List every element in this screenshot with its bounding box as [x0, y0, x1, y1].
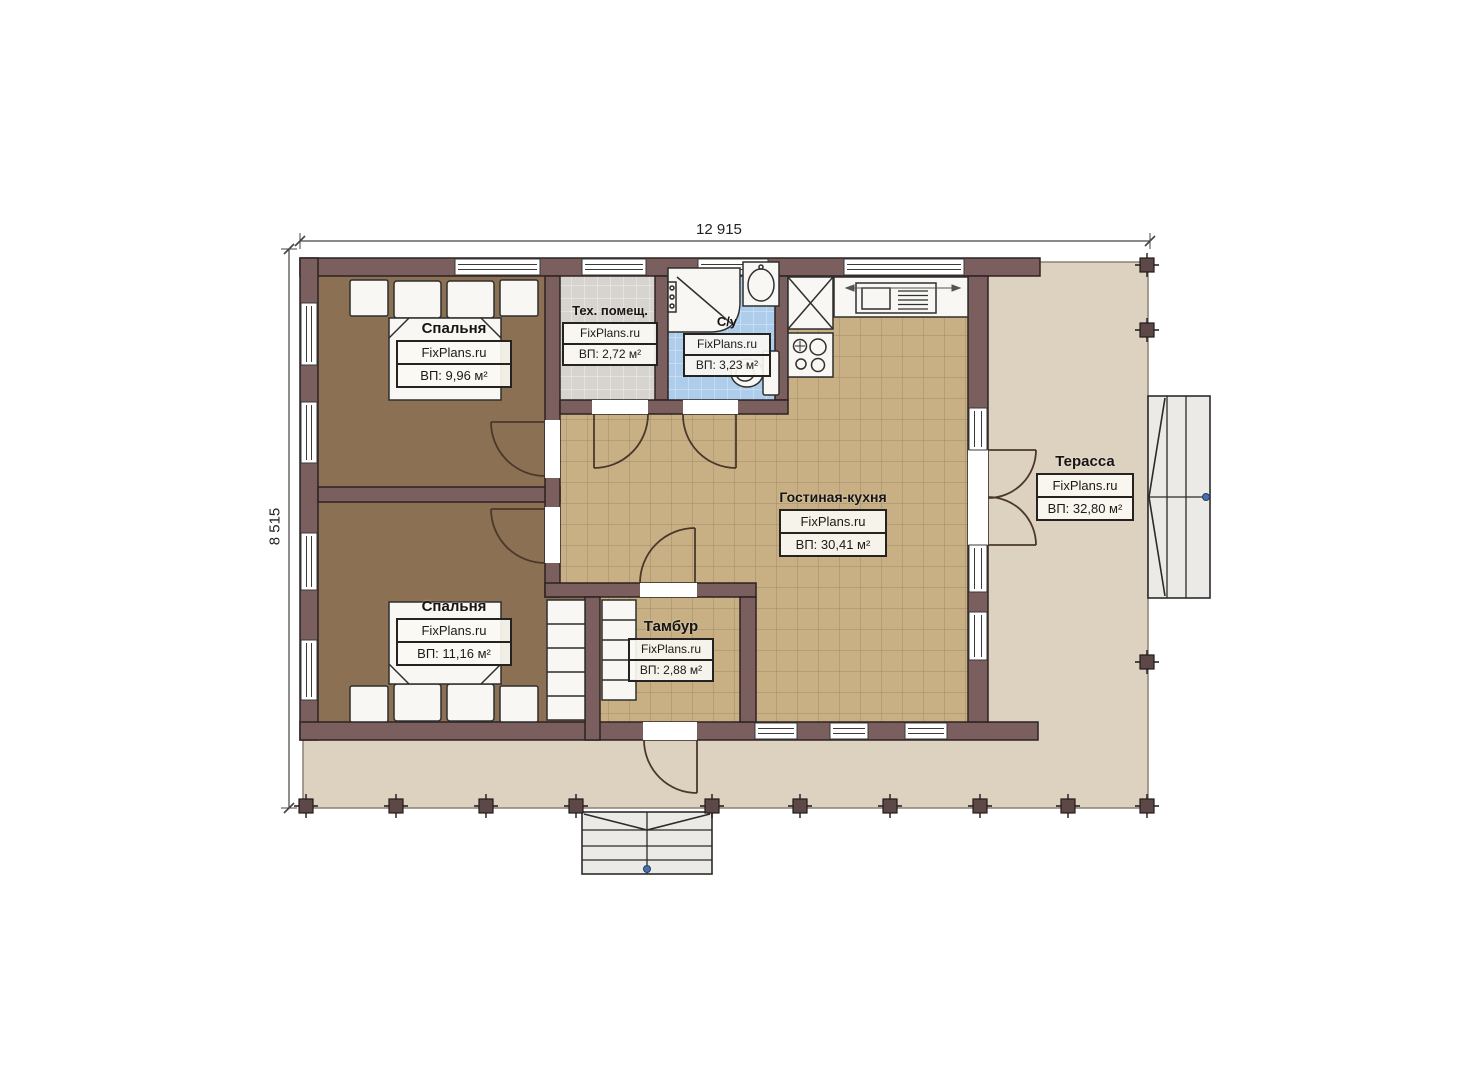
room-area: ВП: 3,23 м²	[685, 354, 769, 375]
bedroom2-door-opening	[545, 507, 560, 563]
watermark-text: FixPlans.ru	[781, 511, 885, 532]
label-box: FixPlans.ru ВП: 11,16 м²	[396, 618, 512, 666]
room-label-tambour: Тамбур FixPlans.ru ВП: 2,88 м²	[628, 618, 714, 682]
watermark-text: FixPlans.ru	[398, 342, 510, 363]
window-left-1	[301, 303, 317, 365]
watermark-text: FixPlans.ru	[630, 640, 712, 659]
stairs-entrance	[582, 812, 712, 874]
window-right-1	[969, 408, 987, 450]
tech-door-opening	[592, 400, 648, 414]
window-left-3	[301, 533, 317, 590]
watermark-text: FixPlans.ru	[398, 620, 510, 641]
label-box: FixPlans.ru ВП: 2,72 м²	[562, 322, 658, 366]
window-left-2	[301, 402, 317, 463]
stairs-terrace	[1148, 396, 1210, 598]
room-label-bedroom-1: Спальня FixPlans.ru ВП: 9,96 м²	[396, 320, 512, 388]
label-box: FixPlans.ru ВП: 9,96 м²	[396, 340, 512, 388]
room-title: Терасса	[1055, 453, 1114, 470]
window-top-tech	[582, 259, 646, 275]
stairs-marker-dot	[644, 866, 651, 873]
room-title: С/у	[717, 313, 737, 330]
window-top-kitchen	[844, 259, 964, 275]
dimension-height-label: 8 515	[266, 504, 283, 550]
wall-bedroom-divider	[318, 487, 560, 502]
window-bottom-1	[755, 723, 797, 739]
bathroom-sink-icon	[743, 262, 779, 306]
terrace-door-opening	[968, 450, 988, 545]
room-label-terrace: Терасса FixPlans.ru ВП: 32,80 м²	[1036, 453, 1134, 521]
label-box: FixPlans.ru ВП: 2,88 м²	[628, 638, 714, 682]
pillow-icon	[447, 281, 494, 318]
floor-plan: 12 915 8 515 Спальня FixPlans.ru ВП: 9,9…	[0, 0, 1473, 1080]
window-right-3	[969, 612, 987, 660]
label-box: FixPlans.ru ВП: 30,41 м²	[779, 509, 887, 557]
room-area: ВП: 2,88 м²	[630, 659, 712, 680]
stairs-marker-dot	[1203, 494, 1210, 501]
watermark-text: FixPlans.ru	[685, 335, 769, 354]
window-top-bedroom1	[455, 259, 540, 275]
room-area: ВП: 9,96 м²	[398, 363, 510, 386]
room-title: Спальня	[422, 320, 487, 337]
room-title: Тамбур	[644, 618, 698, 635]
room-area: ВП: 32,80 м²	[1038, 496, 1132, 519]
tambour-door-opening	[640, 583, 697, 597]
window-right-2	[969, 545, 987, 592]
bath-door-opening	[683, 400, 738, 414]
fridge-icon	[788, 277, 833, 329]
nightstand-icon	[500, 686, 538, 722]
wall-tambour-left	[585, 597, 600, 740]
pillow-icon	[394, 684, 441, 721]
wall-tambour-right	[740, 597, 756, 722]
window-bottom-2	[830, 723, 868, 739]
room-area: ВП: 30,41 м²	[781, 532, 885, 555]
label-box: FixPlans.ru ВП: 32,80 м²	[1036, 473, 1134, 521]
room-title: Тех. помещ.	[572, 302, 648, 319]
room-label-bathroom: С/у FixPlans.ru ВП: 3,23 м²	[683, 313, 771, 377]
nightstand-icon	[500, 280, 538, 316]
bedroom1-door-opening	[545, 420, 560, 478]
room-label-bedroom-2: Спальня FixPlans.ru ВП: 11,16 м²	[396, 598, 512, 666]
floor-plan-svg	[0, 0, 1473, 1080]
room-area: ВП: 2,72 м²	[564, 343, 656, 364]
room-title: Спальня	[422, 598, 487, 615]
window-left-4	[301, 640, 317, 700]
room-area: ВП: 11,16 м²	[398, 641, 510, 664]
watermark-text: FixPlans.ru	[564, 324, 656, 343]
entrance-door-opening	[643, 722, 697, 740]
nightstand-icon	[350, 280, 388, 316]
room-label-tech-room: Тех. помещ. FixPlans.ru ВП: 2,72 м²	[562, 302, 658, 366]
room-label-living-kitchen: Гостиная-кухня FixPlans.ru ВП: 30,41 м²	[779, 489, 887, 557]
watermark-text: FixPlans.ru	[1038, 475, 1132, 496]
wardrobe-icon-bedroom2	[547, 600, 585, 720]
nightstand-icon	[350, 686, 388, 722]
pillow-icon	[447, 684, 494, 721]
label-box: FixPlans.ru ВП: 3,23 м²	[683, 333, 771, 377]
stove-icon	[788, 333, 833, 377]
window-bottom-3	[905, 723, 947, 739]
dimension-width-label: 12 915	[692, 221, 746, 238]
pillow-icon	[394, 281, 441, 318]
room-title: Гостиная-кухня	[779, 489, 886, 506]
